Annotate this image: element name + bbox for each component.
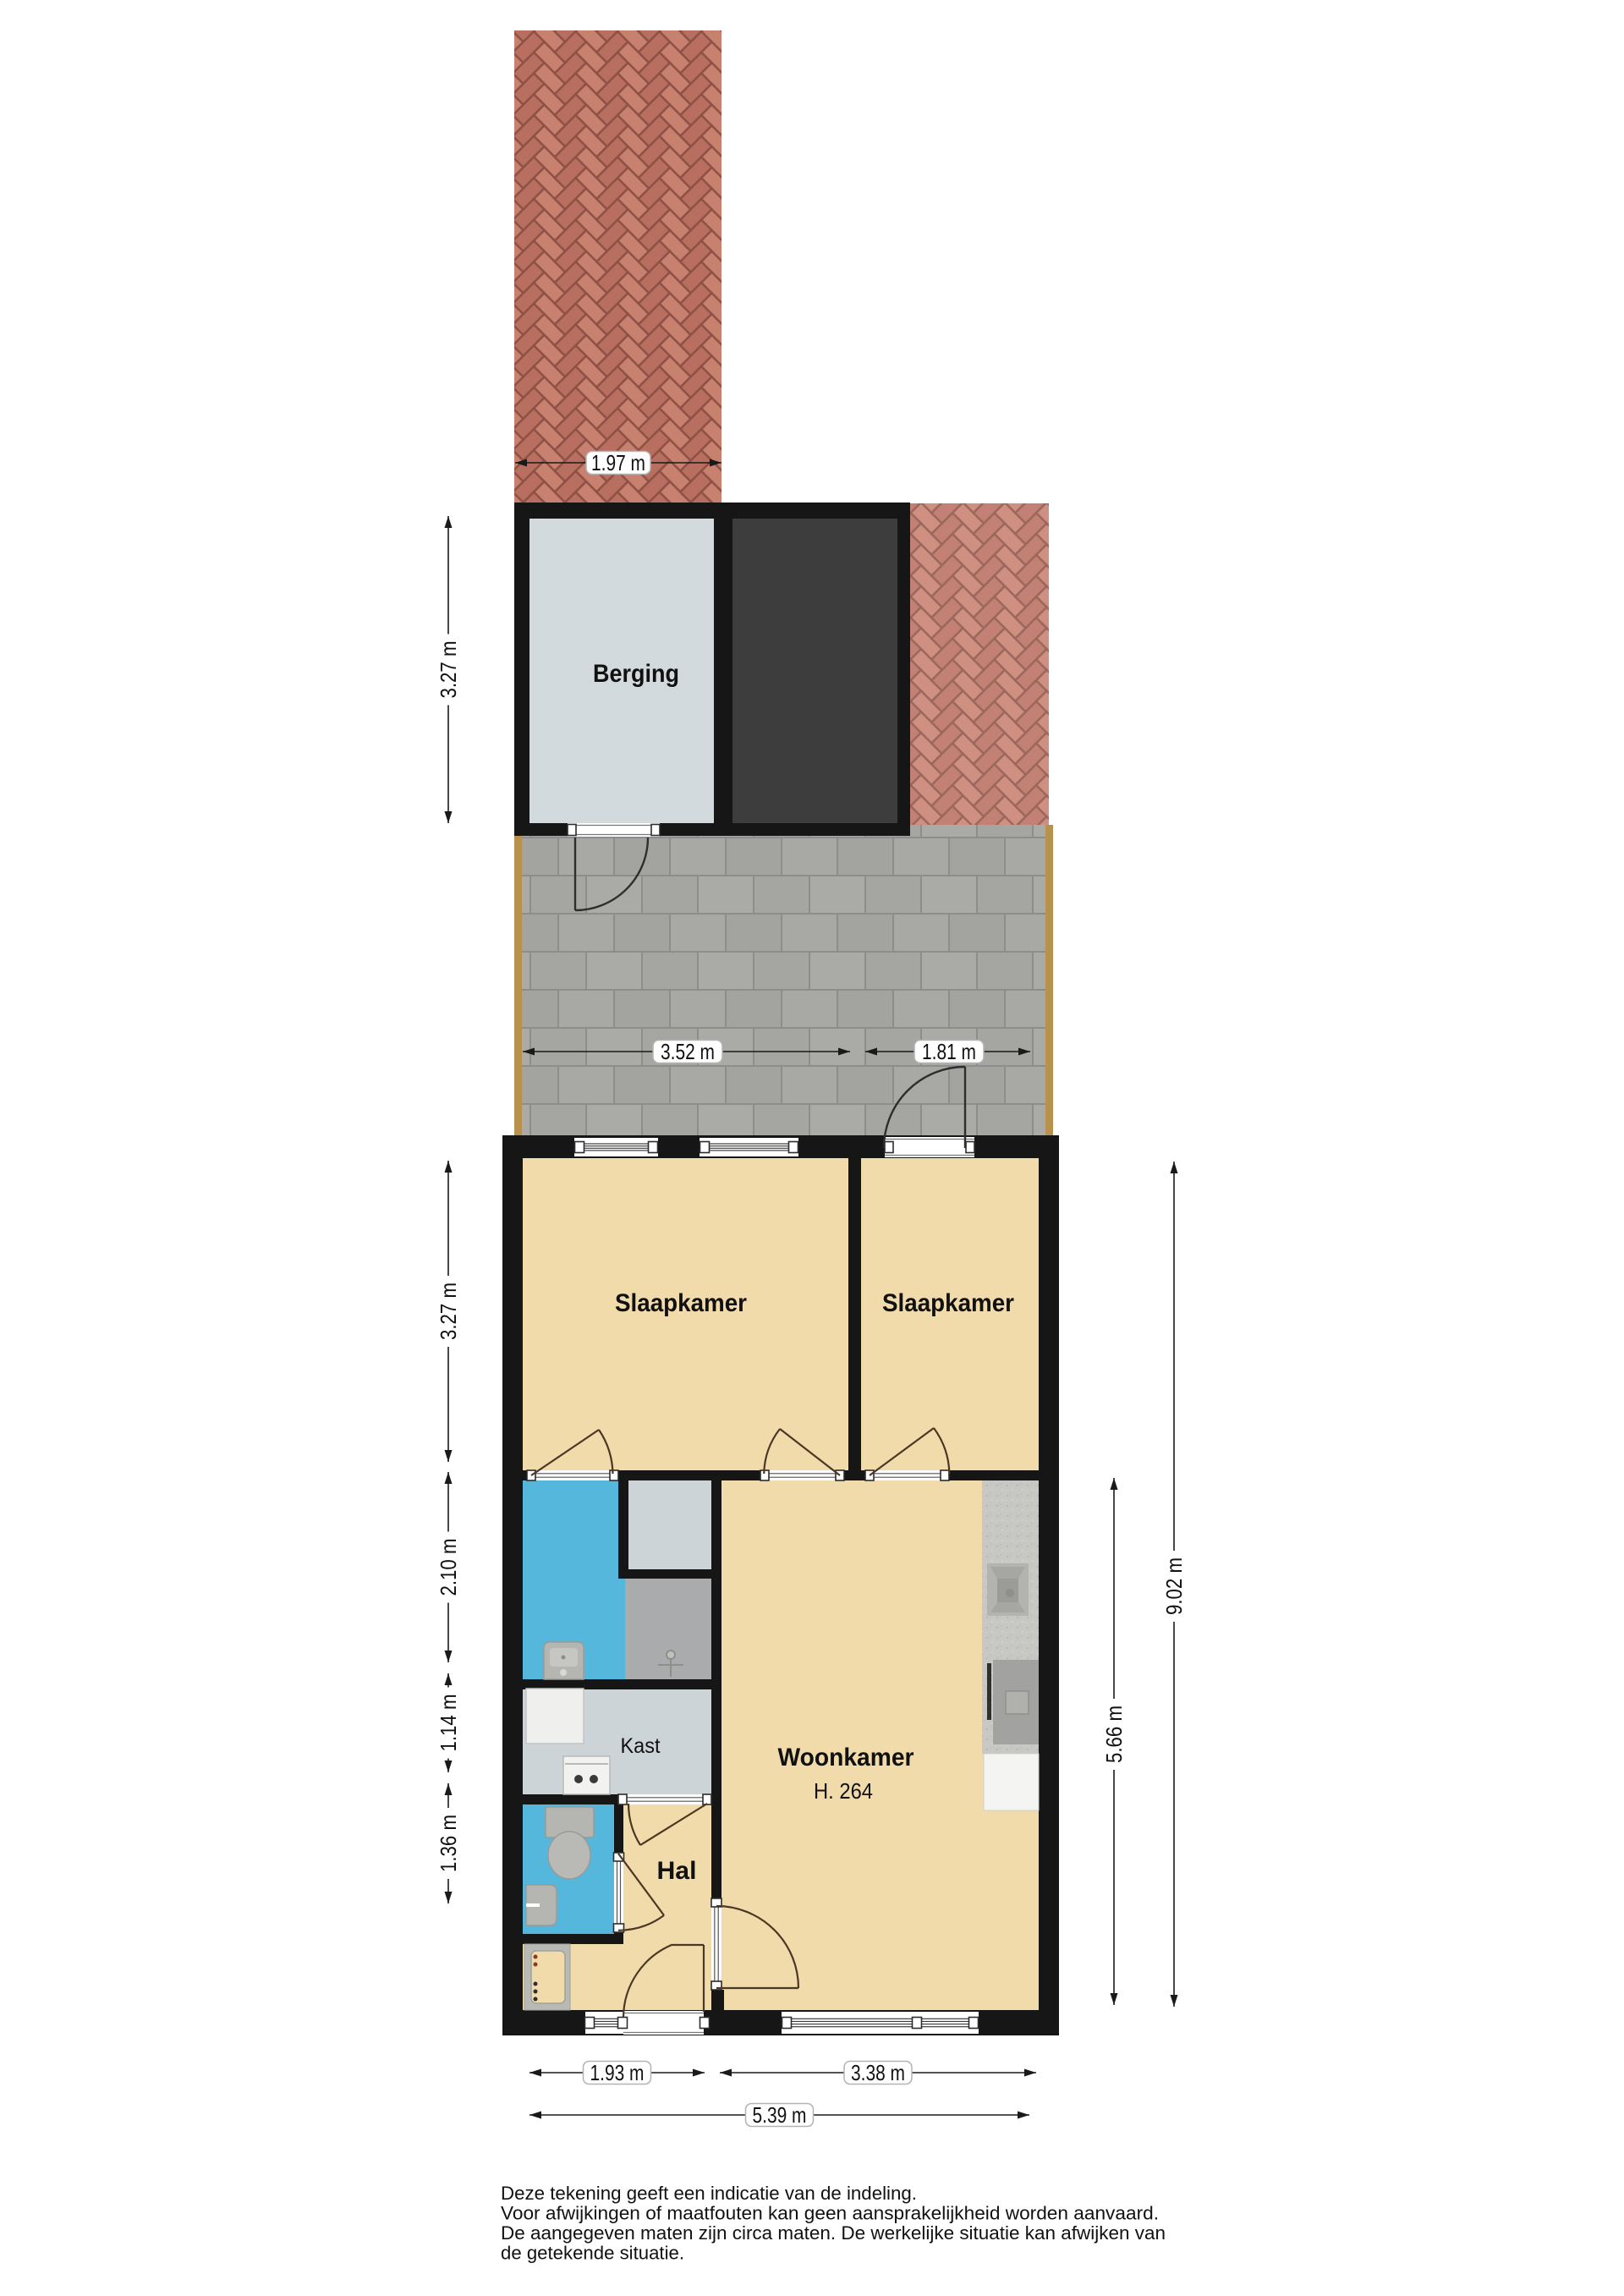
svg-text:Slaapkamer: Slaapkamer — [615, 1289, 747, 1317]
svg-text:5.66 m: 5.66 m — [1101, 1706, 1127, 1763]
svg-text:5.39 m: 5.39 m — [753, 2102, 807, 2128]
svg-text:3.52 m: 3.52 m — [661, 1039, 715, 1064]
svg-text:Hal: Hal — [657, 1857, 697, 1885]
svg-text:1.14 m: 1.14 m — [436, 1695, 461, 1752]
svg-text:2.10 m: 2.10 m — [436, 1539, 461, 1596]
svg-text:1.36 m: 1.36 m — [436, 1815, 461, 1872]
svg-text:3.38 m: 3.38 m — [851, 2060, 905, 2085]
svg-text:De aangegeven maten zijn circa: De aangegeven maten zijn circa maten. De… — [501, 2222, 1166, 2244]
svg-text:Kast: Kast — [621, 1734, 661, 1758]
svg-text:9.02 m: 9.02 m — [1161, 1557, 1187, 1615]
svg-text:3.27 m: 3.27 m — [436, 1283, 461, 1340]
svg-text:H. 264: H. 264 — [814, 1778, 873, 1804]
svg-text:3.27 m: 3.27 m — [436, 641, 461, 699]
svg-text:Voor afwijkingen of maatfoute: Voor afwijkingen of maatfouten kan geen … — [501, 2203, 1159, 2224]
svg-text:Slaapkamer: Slaapkamer — [882, 1289, 1014, 1317]
svg-text:1.93 m: 1.93 m — [590, 2060, 645, 2085]
svg-text:Deze tekening geeft een indica: Deze tekening geeft een indicatie van de… — [501, 2183, 917, 2204]
svg-text:de getekende situatie.: de getekende situatie. — [501, 2243, 684, 2264]
svg-text:1.81 m: 1.81 m — [922, 1039, 976, 1064]
svg-text:Berging: Berging — [593, 660, 679, 688]
svg-text:Woonkamer: Woonkamer — [778, 1744, 914, 1771]
svg-text:1.97 m: 1.97 m — [591, 450, 645, 475]
